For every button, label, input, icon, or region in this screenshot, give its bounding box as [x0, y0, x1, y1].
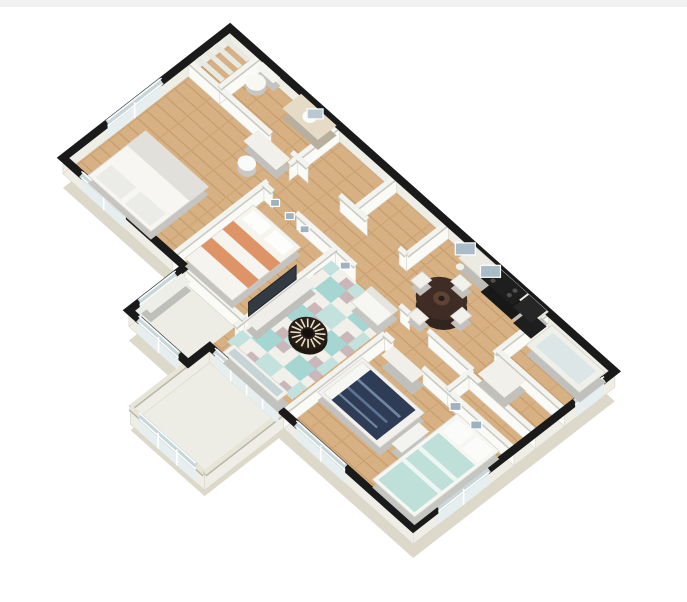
- wall-picture: [480, 265, 500, 277]
- wall-picture: [455, 243, 475, 255]
- wall-picture: [300, 226, 309, 233]
- wall-picture: [340, 262, 350, 269]
- wall-picture: [285, 213, 294, 220]
- isometric-floor-plan: [0, 0, 687, 602]
- floor-plan-stage: [0, 0, 687, 602]
- bathroom-mirror: [307, 109, 323, 119]
- round-ottoman-spoke: [290, 332, 300, 333]
- round-ottoman-spoke: [315, 334, 325, 335]
- page: { "meta": { "description": "3D isometric…: [0, 0, 687, 602]
- wall-picture: [271, 199, 280, 206]
- wall-picture: [471, 421, 482, 429]
- wall-picture: [450, 402, 461, 410]
